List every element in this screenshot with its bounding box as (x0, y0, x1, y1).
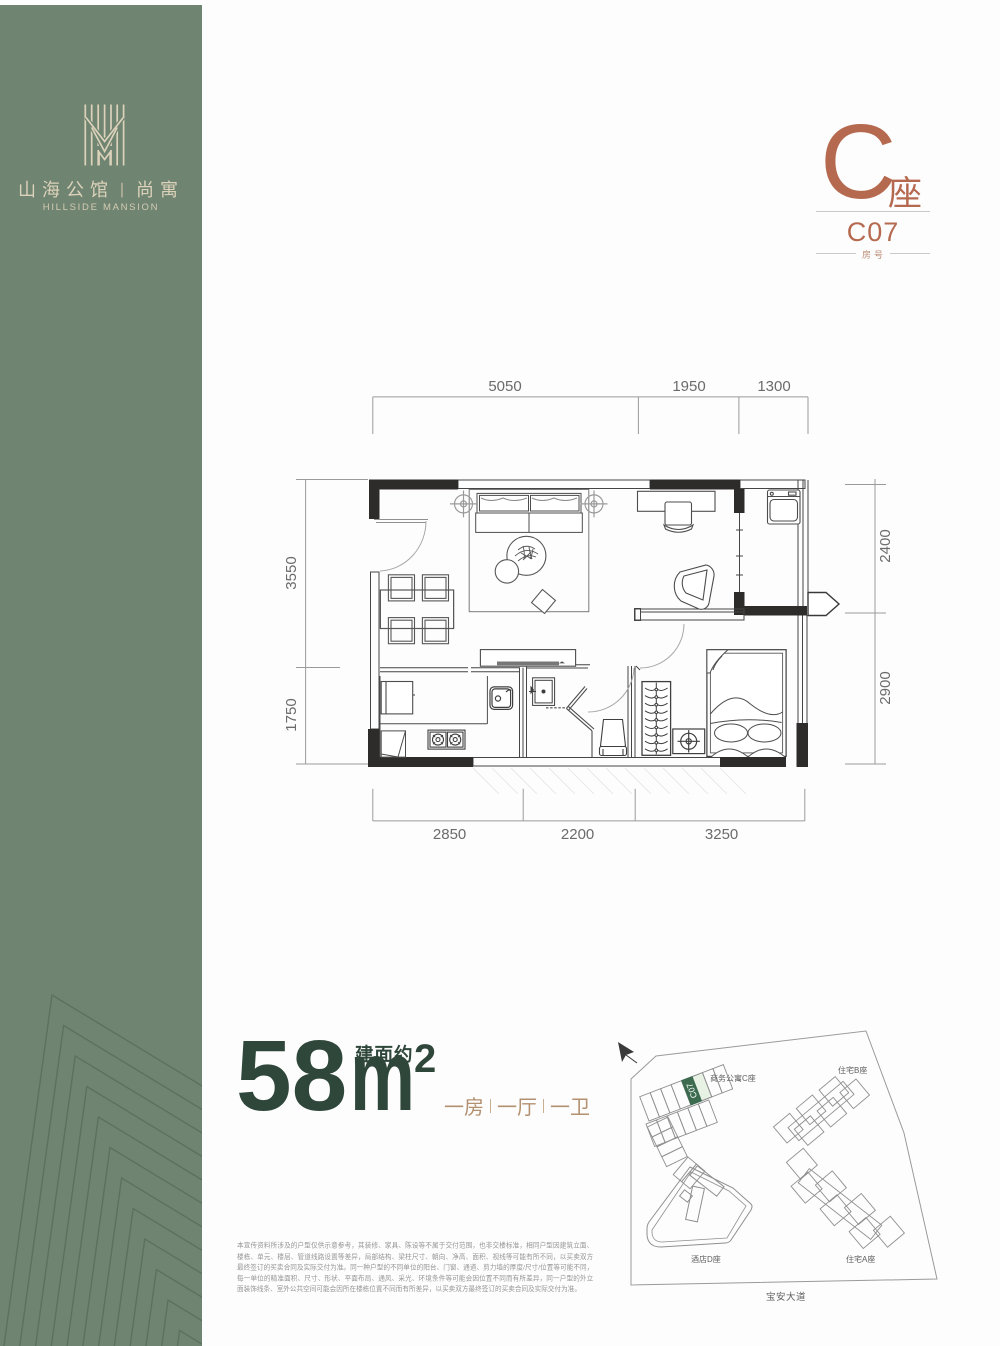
svg-text:2400: 2400 (877, 529, 894, 562)
svg-text:2200: 2200 (561, 826, 594, 843)
svg-text:2850: 2850 (433, 826, 466, 843)
svg-text:5050: 5050 (488, 378, 521, 395)
svg-text:酒店D座: 酒店D座 (691, 1254, 721, 1264)
svg-text:3550: 3550 (283, 556, 300, 589)
svg-text:1750: 1750 (283, 698, 300, 731)
svg-text:宝安大道: 宝安大道 (766, 1291, 806, 1303)
svg-text:3250: 3250 (705, 826, 738, 843)
svg-text:住宅B座: 住宅B座 (838, 1065, 867, 1075)
svg-text:商务公寓C座: 商务公寓C座 (710, 1073, 756, 1083)
svg-text:1950: 1950 (672, 378, 705, 395)
svg-text:2900: 2900 (877, 671, 894, 704)
svg-text:住宅A座: 住宅A座 (846, 1254, 875, 1264)
svg-text:1300: 1300 (757, 378, 790, 395)
